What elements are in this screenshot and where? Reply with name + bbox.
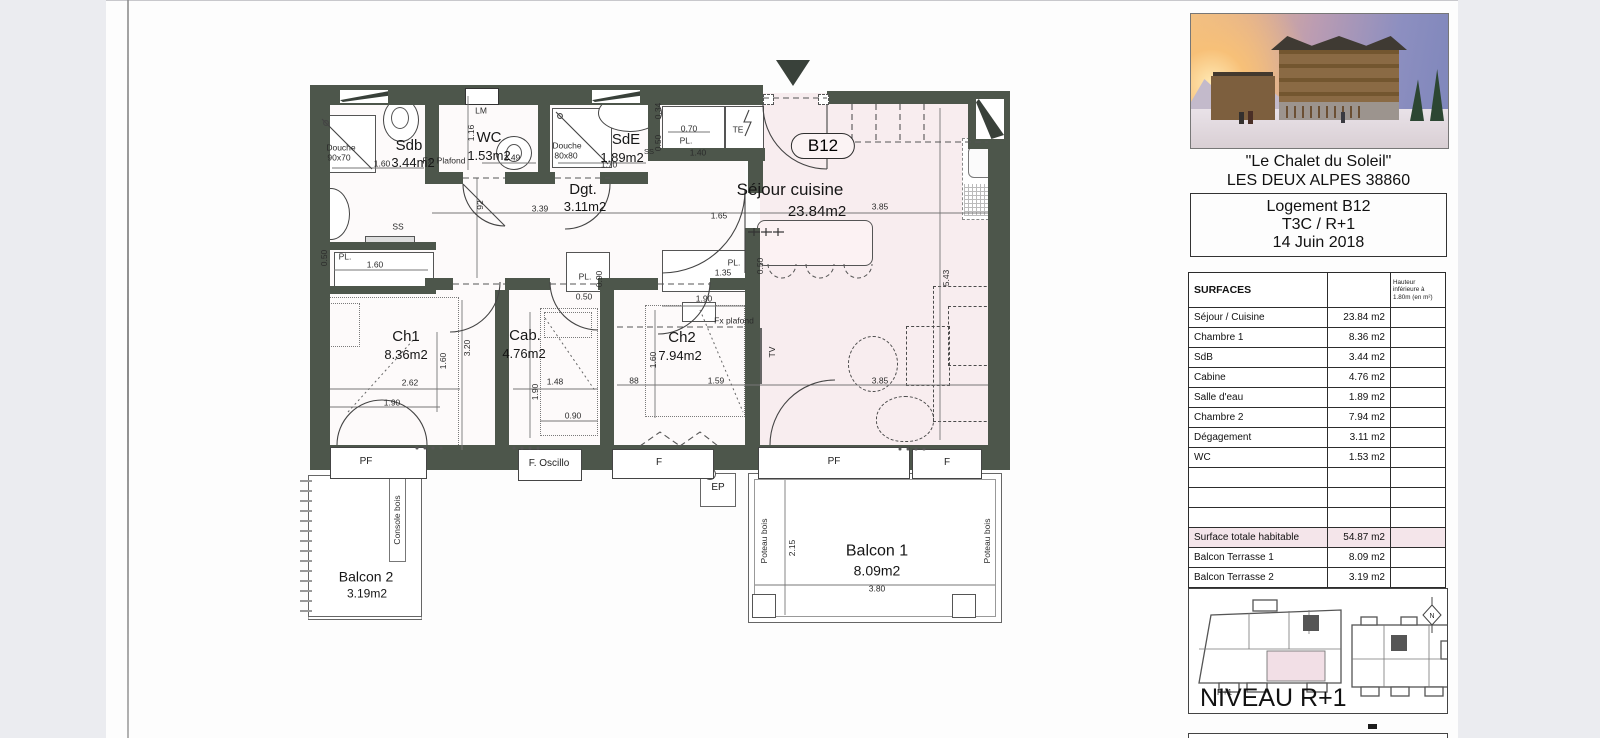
table-row: Balcon Terrasse 18.09 m2 [1189,548,1446,568]
pl-label: PL. [579,273,592,282]
dim-label: 0.50 [319,250,329,267]
sofa-seat-dashed [948,306,992,366]
poteau-bois-label: Poteau bois [982,519,992,564]
dim-label: 5.43 [941,270,951,287]
dim-label: 0.50 [576,293,593,302]
table-row: Chambre 27.94 m2 [1189,408,1446,428]
residence-city: LES DEUX ALPES 38860 [1190,172,1447,190]
wall-segment [598,278,658,290]
room-area-balcon2: 3.19m2 [347,588,387,601]
pillow-dotted [544,312,592,338]
building-render-photo [1190,13,1449,149]
room-area-sejour: 23.84m2 [788,204,846,220]
poteau-bois-label: Poteau bois [759,519,769,564]
room-name-balcon1: Balcon 1 [846,544,908,561]
shutter-coil [413,444,445,452]
person [1239,112,1244,124]
wall-segment [330,242,436,250]
te-label: TE [733,126,744,135]
room-area-dgt: 3.11m2 [564,200,606,214]
compass-n: N [1429,613,1434,620]
room-name-ch2: Ch2 [668,330,696,346]
dining-table [757,220,873,266]
wall-segment [330,286,436,294]
roof-window-icon [592,90,640,103]
door-threshold [818,94,829,105]
balcony-2-hatch [300,478,312,612]
roof-window-icon [976,99,1004,139]
lm-opening [465,88,499,105]
dim-label: 1.60 [438,353,448,370]
entry-closet [662,106,764,152]
dim-label: 1.60 [648,352,658,369]
dim-label: 1.60 [374,160,391,169]
wall-segment [827,91,990,104]
console-bois-label: Console bois [392,495,402,544]
unit-number: Logement B12 [1191,198,1446,216]
room-name-sdb: Sdb [396,138,423,154]
lm-label: LM [475,107,487,116]
window-label-pf: PF [360,457,373,468]
dim-label: 0.90 [565,412,582,421]
roof-window-icon [340,90,388,103]
room-name-sde: SdE [612,132,640,148]
dim-label: 1.70 [601,161,618,170]
room-name-sejour: Séjour cuisine [737,181,844,199]
wall-segment [710,278,748,290]
scan-edge-line [127,0,129,738]
room-area-ch2: 7.94m2 [658,349,701,363]
dim-label: 1.90 [530,384,540,401]
table-row-empty [1189,468,1446,488]
dim-label: 1.16 [466,125,476,142]
next-box-edge [1188,733,1448,738]
room-name-cab: Cab. [509,328,541,344]
table-row: Chambre 18.36 m2 [1189,328,1446,348]
table-row-empty [1189,488,1446,508]
headboard [682,302,716,322]
dim-label: 1.60 [367,261,384,270]
pillow-dotted [328,303,360,347]
dim-label: 3.85 [872,377,889,386]
dim-label: 88 [629,377,638,386]
douche-size: 90x70 [327,154,350,163]
wood-fence [1286,106,1366,118]
table-row: WC1.53 m2 [1189,448,1446,468]
wall-segment [505,172,555,184]
tv-label: TV [767,347,777,358]
dim-label: 1.90 [696,295,713,304]
window-label-f: F [656,458,662,469]
douche-label: Douche [326,144,355,153]
douche-size: 80x80 [554,152,577,161]
table-row: Balcon Terrasse 23.19 m2 [1189,568,1446,588]
dim-label: 0.90 [594,271,604,288]
wall-segment [425,172,463,184]
ep-label: EP [711,483,724,494]
pl-label: PL. [339,253,352,262]
wall-segment [988,149,1010,470]
person [1248,111,1253,124]
wall-segment [495,290,509,445]
table-row: Dégagement3.11 m2 [1189,428,1446,448]
dim-label: 0.70 [681,125,698,134]
room-area-ch1: 8.36m2 [384,348,427,362]
pl-label: PL. [680,137,693,146]
dim-label: 2.15 [787,540,797,557]
dim-label: 1.90 [384,399,401,408]
table-row: SdB3.44 m2 [1189,348,1446,368]
table-row: Salle d'eau1.89 m2 [1189,388,1446,408]
unit-info-box: Logement B12 T3C / R+1 14 Juin 2018 [1190,193,1447,257]
wall-segment [600,172,648,184]
window-label-f-oscillo: F. Oscillo [529,459,570,470]
dim-label: 1.48 [547,378,564,387]
window-label-f: F [944,458,950,469]
room-area-balcon1: 8.09m2 [854,564,901,579]
plan-date: 14 Juin 2018 [1191,234,1446,252]
dim-label: 2.62 [402,379,419,388]
shutter-coil [510,444,540,452]
door-threshold [763,94,774,105]
hauteur-note: Hauteur inférieure à 1.80m (en m²) [1391,273,1446,308]
dim-label: 1.35 [715,269,732,278]
surfaces-table: SURFACES Hauteur inférieure à 1.80m (en … [1188,272,1446,588]
table-row-empty [1189,508,1446,528]
room-name-balcon2: Balcon 2 [339,570,393,585]
residence-name: "Le Chalet du Soleil" [1190,153,1447,171]
wall-segment [505,278,550,290]
dim-label: 3.80 [869,585,886,594]
unit-badge: B12 [791,133,855,159]
table-row: Cabine4.76 m2 [1189,368,1446,388]
dim-label: 1.65 [711,212,728,221]
closet-divider [724,106,726,150]
table-row-total: Surface totale habitable54.87 m2 [1189,528,1446,548]
room-name-ch1: Ch1 [392,329,420,345]
wall-segment [600,290,614,445]
dim-label: 0.50 [653,135,663,152]
chalet-roof [1271,36,1407,50]
dim-label: 1.59 [708,377,725,386]
table-row: Séjour / Cuisine23.84 m2 [1189,308,1446,328]
scanned-plan-page: Sdb 3.44m2 1.60 Douche 90x70 WC 1.53m2 L… [0,0,1600,738]
douche-label: Douche [552,142,581,151]
wall-segment [538,85,550,177]
dim-label: 1.40 [690,149,707,158]
room-name-wc: WC [477,130,502,146]
dim-label: 3.39 [532,205,549,214]
dim-label: 0.50 [755,258,765,275]
room-name-dgt: Dgt. [569,182,597,198]
window-label-pf: PF [828,457,841,468]
pl-label: PL. [728,259,741,268]
unit-type: T3C / R+1 [1191,216,1446,234]
fx-plafond-label: Fx plafond [714,317,754,326]
dim-label: 1.49 [504,154,521,163]
shutter-coil [896,445,930,453]
page-mark [1368,724,1377,729]
table-title: SURFACES [1189,273,1328,308]
dim-label: 0.34 [653,103,663,120]
person [1341,112,1345,123]
ss-label: SS [392,223,403,232]
dim-label: 3.85 [872,203,889,212]
pouf-dashed [876,396,934,442]
dim-label: 3.20 [462,340,472,357]
room-area-cab: 4.76m2 [502,347,545,361]
window-f-ch2 [612,449,714,479]
wood-post [752,594,776,618]
fx-plafond-label: Fx. Plafond [423,157,466,166]
level-title: NIVEAU R+1 [1200,684,1347,713]
dim-label: 92 [475,200,485,209]
wood-post [952,594,976,618]
entrance-arrow-icon [776,60,810,86]
